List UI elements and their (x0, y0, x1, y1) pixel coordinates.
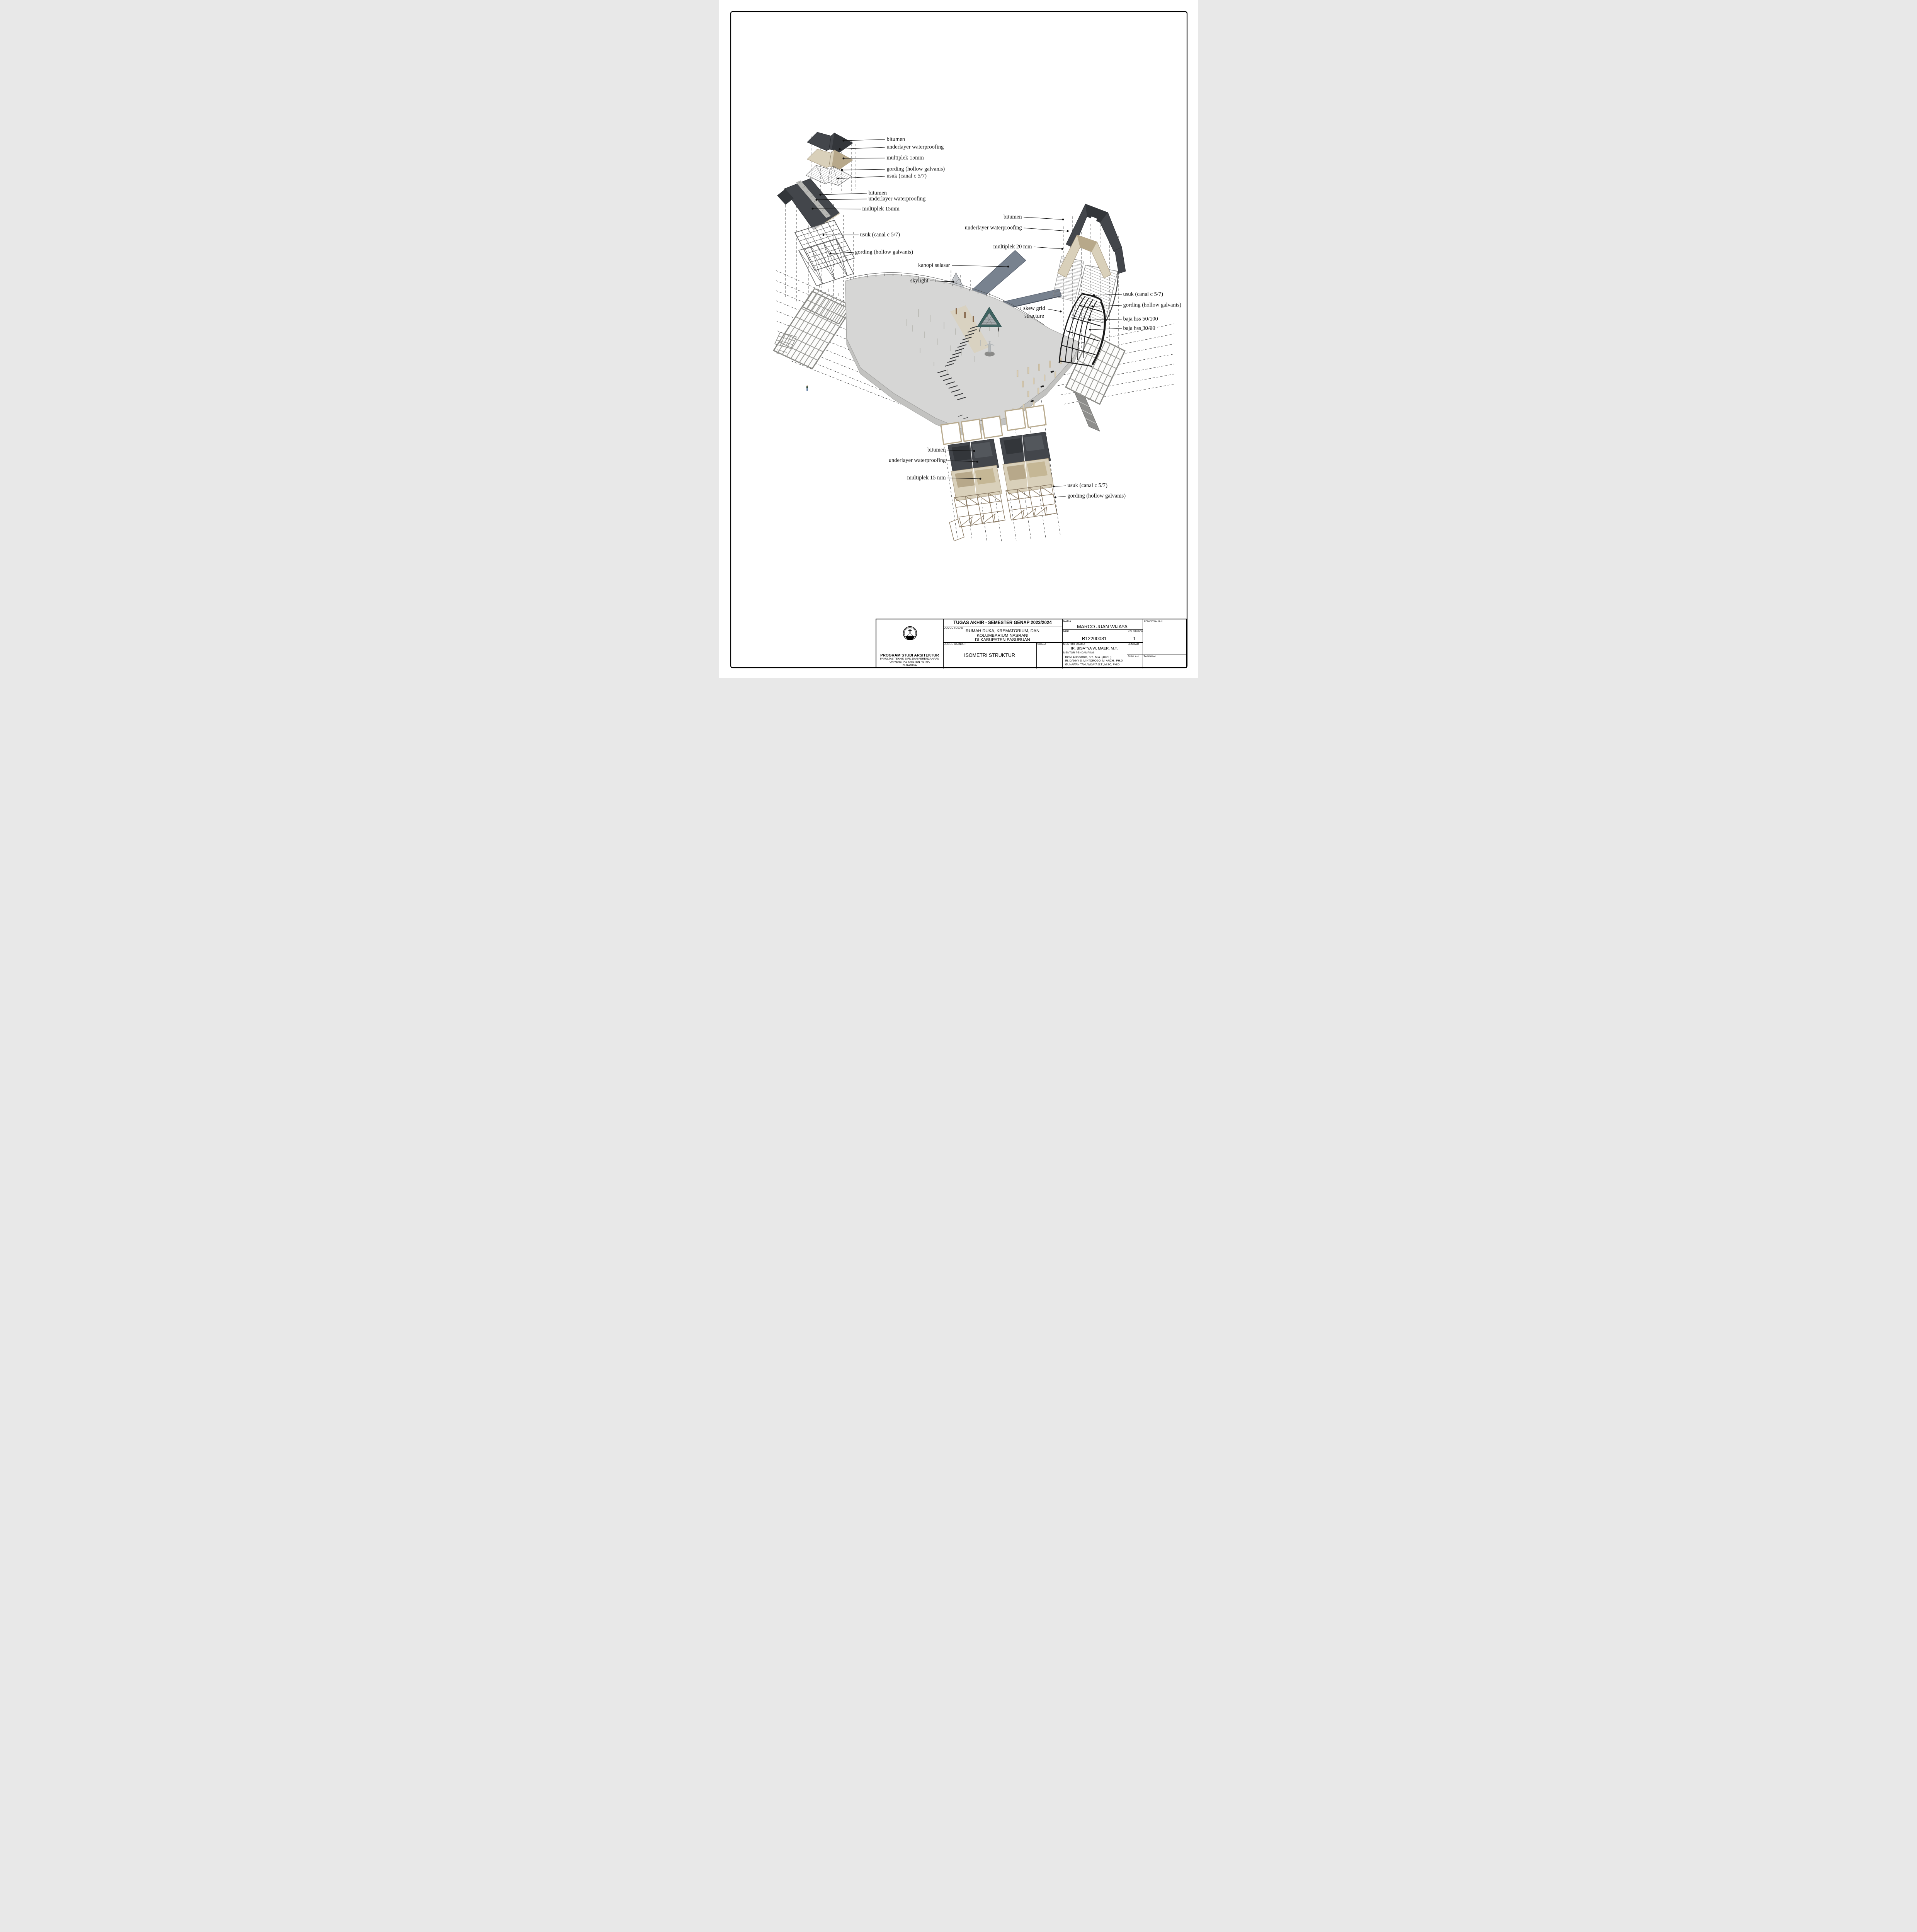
topleft-bitumen-roof (807, 132, 853, 152)
label-usuk-midleft: usuk (canal c 5/7) (860, 232, 900, 238)
judul-gambar-cell: JUDUL GAMBAR ISOMETRI STRUKTUR (943, 642, 1036, 668)
midleft-usuk-grid (795, 220, 854, 270)
label-bitumen-right: bitumen (1004, 214, 1022, 221)
label-skylight: skylight (910, 278, 929, 284)
university: UNIVERSITAS KRISTEN PETRA (876, 661, 943, 664)
title-block: UNIVERSITAS KRISTEN PETRA PROGRAM STUDI … (876, 619, 1187, 668)
label-skew-grid-line2: structure (1023, 312, 1045, 320)
mentor-pendamping-label: MENTOR PENDAMPING (1063, 651, 1094, 654)
label-gording-topleft: gording (hollow galvanis) (887, 166, 945, 173)
label-underlayer-right: underlayer waterproofing (965, 225, 1022, 231)
label-usuk-right: usuk (canal c 5/7) (1123, 291, 1163, 298)
label-multiplek-bottom: multiplek 15 mm (907, 475, 946, 481)
lembar-label: LEMBAR (1128, 643, 1139, 646)
label-kanopi-selasar: kanopi selasar (918, 262, 950, 269)
lembar-cell: LEMBAR (1127, 642, 1143, 655)
mentor-cell: MENTOR UTAMA IR. BISATYA W. MAER, M.T. M… (1062, 642, 1127, 668)
drawing-title: ISOMETRI STRUKTUR (943, 642, 1036, 668)
project-title-line3: DI KABUPATEN PASURUAN (943, 638, 1062, 643)
label-multiplek-topleft: multiplek 15mm (887, 155, 924, 162)
label-gording-right: gording (hollow galvanis) (1123, 302, 1182, 309)
mentor-utama-label: MENTOR UTAMA (1063, 643, 1085, 646)
topleft-multiplek-roof (807, 149, 853, 169)
jumlah-cell: JUMLAH (1127, 655, 1143, 668)
program-studi: PROGRAM STUDI ARSITEKTUR (876, 653, 943, 658)
mentor-pendamping-3: GUNAWAN TANUWIJAYA S.T., M.SC, PH.D. (1065, 663, 1123, 666)
label-skew-grid-line1: skew grid (1023, 304, 1045, 312)
label-usuk-bottom: usuk (canal c 5/7) (1068, 483, 1107, 489)
label-underlayer-midleft: underlayer waterproofing (869, 196, 926, 202)
tanggal-cell: TANGGAL (1143, 655, 1187, 668)
label-bitumen-topleft: bitumen (887, 136, 905, 143)
label-underlayer-topleft: underlayer waterproofing (887, 144, 944, 151)
skala-cell: SKALA (1036, 642, 1062, 668)
label-multiplek-midleft: multiplek 15mm (862, 206, 900, 213)
drawing-sheet: bitumen underlayer waterproofing multipl… (719, 0, 1198, 678)
kelompok-label: KELOMPOK (1128, 630, 1143, 633)
tanggal-label: TANGGAL (1144, 655, 1157, 658)
label-baja-hss-30-60: baja hss 30/60 (1123, 325, 1155, 332)
assignment-header: TUGAS AKHIR - SEMESTER GENAP 2023/2024 (943, 619, 1062, 626)
pengesahan-label: PENGESAHAN (1144, 620, 1163, 623)
nama-label: NAMA (1063, 620, 1071, 623)
jumlah-label: JUMLAH (1128, 655, 1139, 658)
skala-label: SKALA (1038, 643, 1046, 646)
city: SURABAYA (876, 664, 943, 667)
label-multiplek-right: multiplek 20 mm (993, 244, 1032, 250)
header-cell: TUGAS AKHIR - SEMESTER GENAP 2023/2024 (943, 619, 1062, 626)
faculty: FAKULTAS TEKNIK SIPIL DAN PERENCANAAN (876, 658, 943, 661)
judul-tugas-cell: JUDUL TUGAS RUMAH DUKA, KREMATORIUM, DAN… (943, 626, 1062, 642)
institution-cell: UNIVERSITAS KRISTEN PETRA PROGRAM STUDI … (876, 619, 943, 668)
pengesahan-cell: PENGESAHAN (1143, 619, 1187, 655)
label-gording-midleft: gording (hollow galvanis) (855, 249, 913, 256)
mentor-utama-name: IR. BISATYA W. MAER, M.T. (1062, 646, 1127, 651)
mentor-pendamping-1: RONI ANGGORO, S.T., M.A. (ARCH) (1065, 655, 1123, 659)
project-title-line1: RUMAH DUKA, KREMATORIUM, DAN (943, 629, 1062, 634)
label-skew-grid: skew grid structure (1023, 304, 1045, 320)
label-usuk-topleft: usuk (canal c 5/7) (887, 173, 927, 180)
label-gording-bottom: gording (hollow galvanis) (1068, 493, 1126, 500)
kelompok-cell: KELOMPOK 1 (1127, 629, 1143, 642)
petra-university-logo: UNIVERSITAS KRISTEN PETRA (899, 622, 921, 645)
label-bitumen-bottom: bitumen (927, 447, 946, 454)
label-baja-hss-50-100: baja hss 50/100 (1123, 316, 1158, 323)
mentor-pendamping-2: IR. DANNY S. MINTOROGO, M. ARCH., PH.D (1065, 659, 1123, 662)
nama-cell: NAMA MARCO JUAN WIJAYA (1062, 619, 1143, 629)
nrp-cell: NRP B12200081 (1062, 629, 1127, 642)
left-beam-grid-large (774, 291, 851, 369)
nrp-label: NRP (1063, 630, 1069, 633)
judul-gambar-label: JUDUL GAMBAR (944, 643, 966, 646)
label-underlayer-bottom: underlayer waterproofing (889, 457, 946, 464)
isometric-structure-drawing (719, 0, 1198, 678)
scale-figure-person (806, 386, 808, 391)
